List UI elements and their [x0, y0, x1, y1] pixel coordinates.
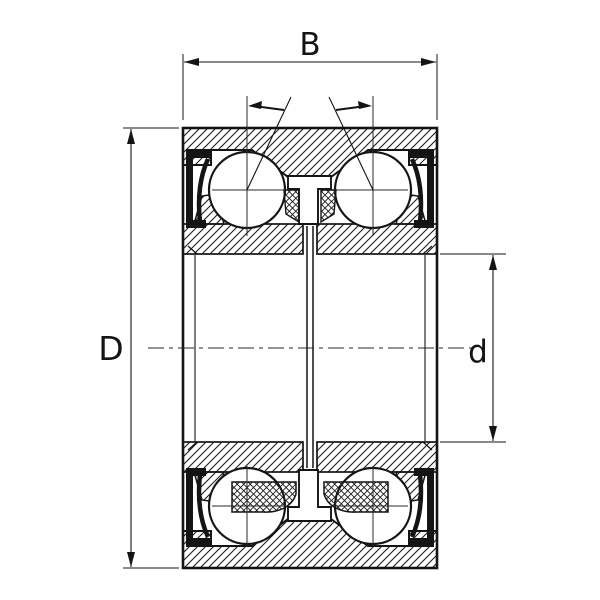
- d-outer-arrow-top: [127, 129, 135, 144]
- contact-angle-arrow-left-head: [248, 101, 262, 109]
- d-bore-arrow-bottom: [489, 426, 497, 441]
- cage-top-right: [321, 190, 336, 222]
- cage-bottom-right: [324, 482, 388, 512]
- b-arrow-left: [184, 58, 199, 66]
- cage-bottom-left: [232, 482, 296, 512]
- bearing-cross-section-drawing: B D d: [0, 0, 600, 600]
- bore-diameter-label: d: [468, 334, 488, 370]
- contact-angle-arrow-right-head: [358, 101, 372, 109]
- bearing-drawing-page: B D d: [0, 0, 600, 600]
- dimension-width-b: B: [183, 27, 437, 120]
- width-label: B: [299, 27, 320, 63]
- b-arrow-right: [421, 58, 436, 66]
- dimension-outer-diameter-d: D: [98, 128, 179, 568]
- cage-top-left: [284, 190, 299, 222]
- d-bore-arrow-top: [489, 255, 497, 270]
- outer-diameter-label: D: [98, 329, 123, 368]
- d-outer-arrow-bottom: [127, 552, 135, 567]
